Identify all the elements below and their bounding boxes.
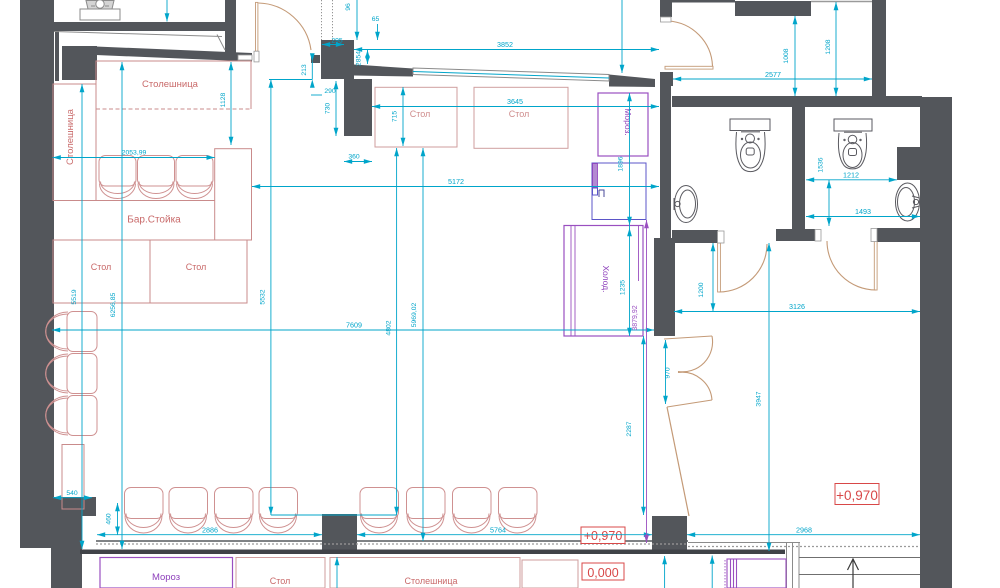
svg-text:730: 730 <box>325 103 332 115</box>
svg-text:295: 295 <box>331 38 343 45</box>
svg-text:Холод.: Холод. <box>601 265 611 292</box>
svg-text:3645: 3645 <box>507 97 523 106</box>
svg-text:Стол: Стол <box>270 576 291 586</box>
svg-text:Столешница: Столешница <box>405 576 458 586</box>
svg-text:290: 290 <box>324 88 336 95</box>
svg-text:1536: 1536 <box>818 157 825 172</box>
svg-text:Столешница: Столешница <box>65 108 76 165</box>
svg-text:3126: 3126 <box>789 302 805 311</box>
svg-text:0,000: 0,000 <box>587 566 618 580</box>
svg-text:1493: 1493 <box>855 207 871 216</box>
svg-text:3879,92: 3879,92 <box>632 305 639 330</box>
svg-text:5532: 5532 <box>260 289 267 304</box>
svg-text:Мороз: Мороз <box>152 572 180 583</box>
svg-text:3947: 3947 <box>756 391 763 406</box>
svg-text:970: 970 <box>665 367 672 379</box>
svg-text:1200: 1200 <box>698 282 705 297</box>
svg-text:460: 460 <box>106 513 113 525</box>
svg-text:Стол: Стол <box>186 262 207 272</box>
svg-text:540: 540 <box>66 490 78 497</box>
svg-text:5172: 5172 <box>448 177 464 186</box>
svg-text:5969,02: 5969,02 <box>411 303 418 328</box>
svg-text:3852: 3852 <box>497 40 513 49</box>
svg-text:Мороз.: Мороз. <box>623 108 633 136</box>
svg-text:Стол: Стол <box>91 262 112 272</box>
svg-text:2886: 2886 <box>202 526 218 535</box>
svg-text:1008: 1008 <box>783 48 790 63</box>
svg-text:2287: 2287 <box>626 421 633 436</box>
svg-text:360: 360 <box>348 154 360 161</box>
svg-text:Бар.Стойка: Бар.Стойка <box>127 215 181 226</box>
svg-text:1896: 1896 <box>618 156 625 171</box>
svg-text:5519: 5519 <box>71 289 78 304</box>
svg-text:213: 213 <box>301 64 308 76</box>
svg-text:Стол: Стол <box>410 109 431 119</box>
svg-text:5764: 5764 <box>490 526 506 535</box>
svg-text:715: 715 <box>392 111 399 123</box>
svg-text:1212: 1212 <box>843 171 859 180</box>
svg-text:1128: 1128 <box>220 92 227 107</box>
svg-text:2577: 2577 <box>765 70 781 79</box>
svg-text:4802: 4802 <box>386 320 393 335</box>
svg-text:2053,99: 2053,99 <box>122 150 147 157</box>
svg-text:+0,970: +0,970 <box>584 529 623 543</box>
svg-text:2968: 2968 <box>796 526 812 535</box>
svg-text:7609: 7609 <box>346 321 362 330</box>
svg-text:6256,85: 6256,85 <box>110 293 117 318</box>
svg-text:+0,970: +0,970 <box>836 488 878 503</box>
svg-text:Столешница: Столешница <box>142 79 199 90</box>
svg-text:2854: 2854 <box>356 51 363 66</box>
svg-text:96: 96 <box>345 3 352 11</box>
svg-text:65: 65 <box>372 16 380 23</box>
svg-text:1208: 1208 <box>825 39 832 54</box>
svg-text:1235: 1235 <box>620 280 627 295</box>
svg-text:Стол: Стол <box>509 109 530 119</box>
